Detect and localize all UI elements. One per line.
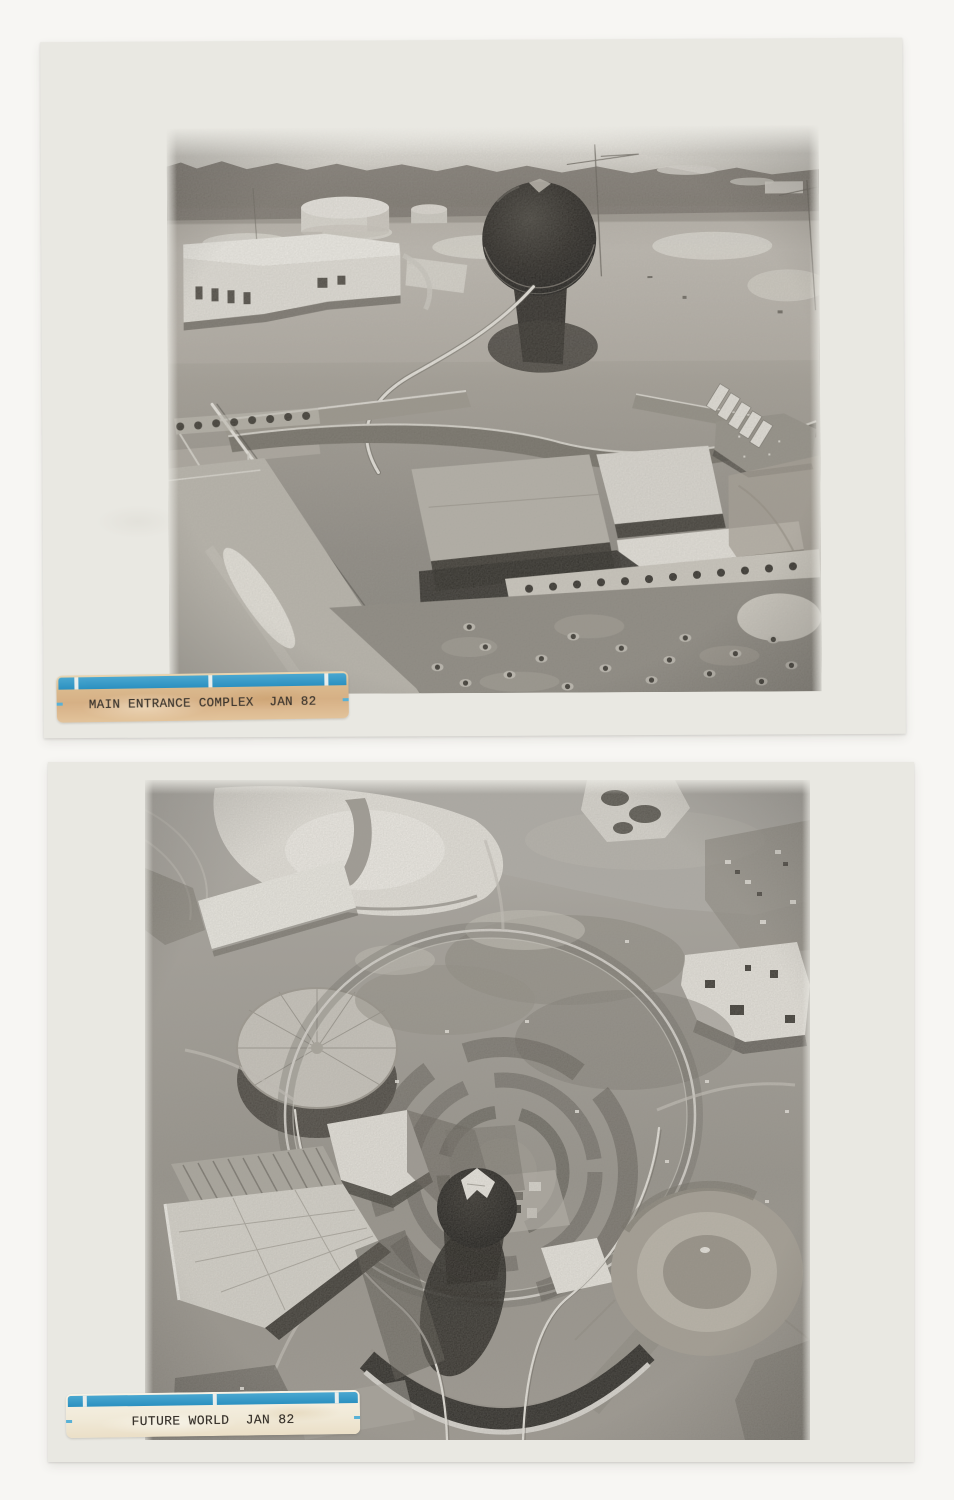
photo-main-entrance xyxy=(167,125,822,694)
photo-print-future-world: FUTURE WORLD JAN 82 xyxy=(48,762,914,1462)
film-grain xyxy=(167,125,822,694)
caption-text-future-world: FUTURE WORLD JAN 82 xyxy=(66,1402,360,1438)
soft-left-edge xyxy=(145,780,153,1440)
hazy-top-edge xyxy=(167,125,819,156)
soft-top-edge xyxy=(145,780,810,794)
photo-main-entrance-illustration xyxy=(167,125,822,694)
photo-print-main-entrance: MAIN ENTRANCE COMPLEX JAN 82 xyxy=(40,38,906,739)
caption-tape-main-entrance: MAIN ENTRANCE COMPLEX JAN 82 xyxy=(56,671,349,723)
soft-right-edge xyxy=(802,780,810,1440)
caption-tape-future-world: FUTURE WORLD JAN 82 xyxy=(66,1390,361,1438)
scan-page: { "page": { "background_color": "#f7f6f3… xyxy=(0,0,954,1500)
photo-future-world xyxy=(145,780,810,1440)
photo-future-world-illustration xyxy=(145,780,810,1440)
film-grain xyxy=(145,780,810,1440)
caption-text-main-entrance: MAIN ENTRANCE COMPLEX JAN 82 xyxy=(56,684,348,723)
